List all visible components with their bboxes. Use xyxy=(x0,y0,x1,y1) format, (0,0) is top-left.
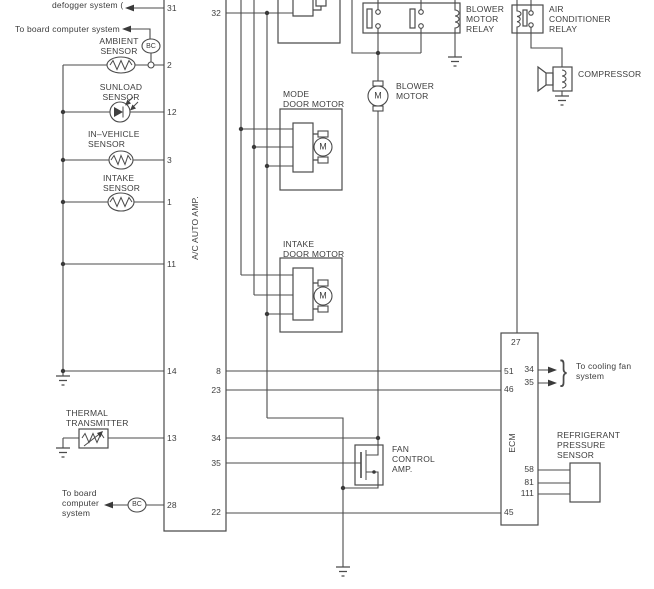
refrigerant-pressure-sensor-box xyxy=(570,463,600,502)
arrow-to-board-computer-icon xyxy=(122,26,131,33)
relay-contact-icon xyxy=(376,10,381,15)
air-mix-door-motor-box xyxy=(278,0,340,43)
compressor-box xyxy=(553,67,572,91)
mode-door-motor-box xyxy=(280,109,342,190)
ground-icon xyxy=(56,376,70,385)
arrow-to-defogger-icon xyxy=(125,5,134,12)
arrow-to-board-computer-icon xyxy=(104,502,113,509)
bc-badge-bottom-icon xyxy=(128,498,146,512)
arrow-to-cooling-fan-icon xyxy=(548,367,557,374)
symbols xyxy=(107,10,533,512)
ground-icon xyxy=(56,448,70,457)
intake-motor-icon xyxy=(314,287,332,305)
ac-wiring-diagram: defogger system (To board computer syste… xyxy=(0,0,654,589)
filled-symbols xyxy=(97,100,136,438)
arrowheads xyxy=(104,5,557,509)
ecm-box xyxy=(501,333,538,525)
bc-badge-top-icon xyxy=(142,39,160,53)
component-boxes xyxy=(79,0,600,531)
connector-terminal-icon xyxy=(148,62,154,68)
fan-control-amp-box xyxy=(355,445,383,485)
compressor-clutch-symbol xyxy=(538,67,546,91)
blower-motor-icon xyxy=(368,86,388,106)
mode-motor-icon xyxy=(314,138,332,156)
ground-icon xyxy=(555,96,569,105)
ac-auto-amp-box xyxy=(164,0,226,531)
ground-icon xyxy=(448,57,462,66)
intake-sensor-icon xyxy=(108,193,134,211)
symbol-details xyxy=(82,61,366,481)
wiring-linework xyxy=(0,0,654,589)
ground-icon xyxy=(336,567,350,576)
in-vehicle-sensor-icon xyxy=(109,151,133,169)
arrow-to-cooling-fan-icon xyxy=(548,380,557,387)
